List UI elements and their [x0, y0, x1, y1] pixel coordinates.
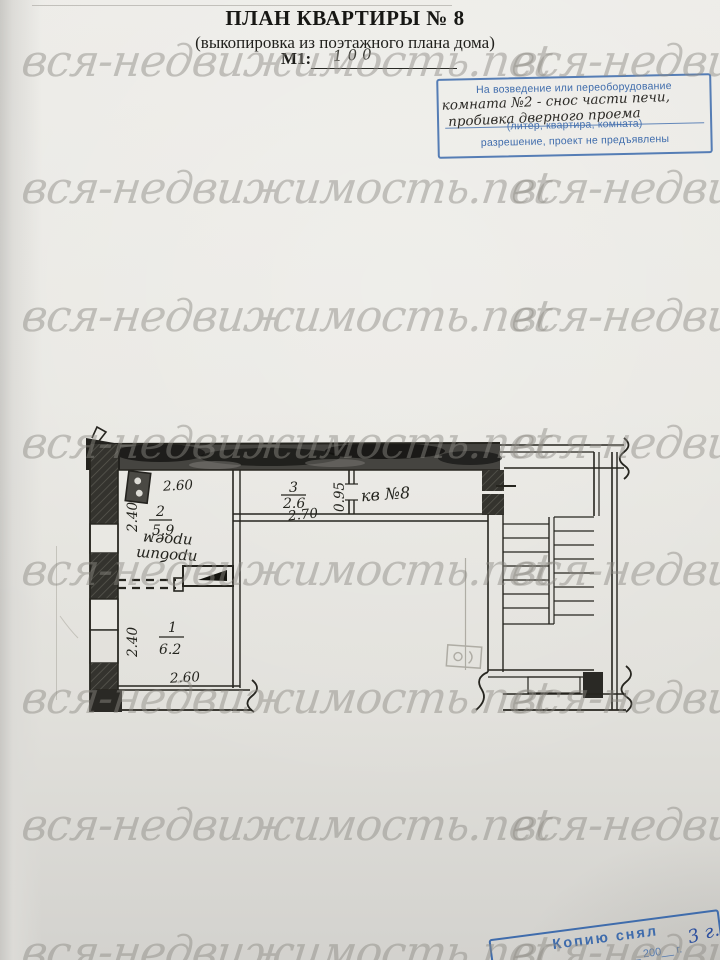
room2-width-dim: 2.60	[162, 477, 194, 495]
apartment-label: кв №8	[360, 483, 410, 505]
pencil-box-icon	[446, 645, 481, 668]
pencil-marks	[57, 546, 482, 700]
room2-height-dim: 2.40	[125, 502, 141, 533]
exterior-walls	[86, 427, 502, 712]
break-mark	[476, 672, 488, 710]
break-mark	[247, 680, 257, 712]
door-width-dim: 0.95	[332, 482, 348, 512]
svg-text:проем: проем	[142, 529, 193, 550]
room1-height-dim: 2.40	[125, 627, 141, 658]
room2-number: 2	[155, 504, 165, 520]
scanned-document-page: ПЛАН КВАРТИРЫ № 8 (выкопировка из поэтаж…	[0, 0, 720, 960]
break-mark	[620, 438, 629, 479]
room1-area: 6.2	[159, 642, 181, 658]
stamp-line3: разрешение, проект не предъявлены	[439, 132, 710, 150]
stove-wedge-icon	[198, 570, 227, 581]
break-mark	[621, 666, 631, 712]
room-labels: 2.60 2.40 2 5.9 3 2.6 2.70 0.95 кв №8 1 …	[125, 477, 411, 687]
room1-width-dim: 2.60	[169, 669, 201, 687]
vent-symbol-icon	[125, 471, 150, 503]
room3-number: 3	[289, 480, 298, 496]
room3-length-dim: 2.70	[286, 505, 319, 524]
rotated-handwritten-note: пробит проем	[135, 529, 199, 567]
permission-stamp: На возведение или переоборудование комна…	[436, 73, 713, 159]
room1-number: 1	[168, 620, 177, 636]
